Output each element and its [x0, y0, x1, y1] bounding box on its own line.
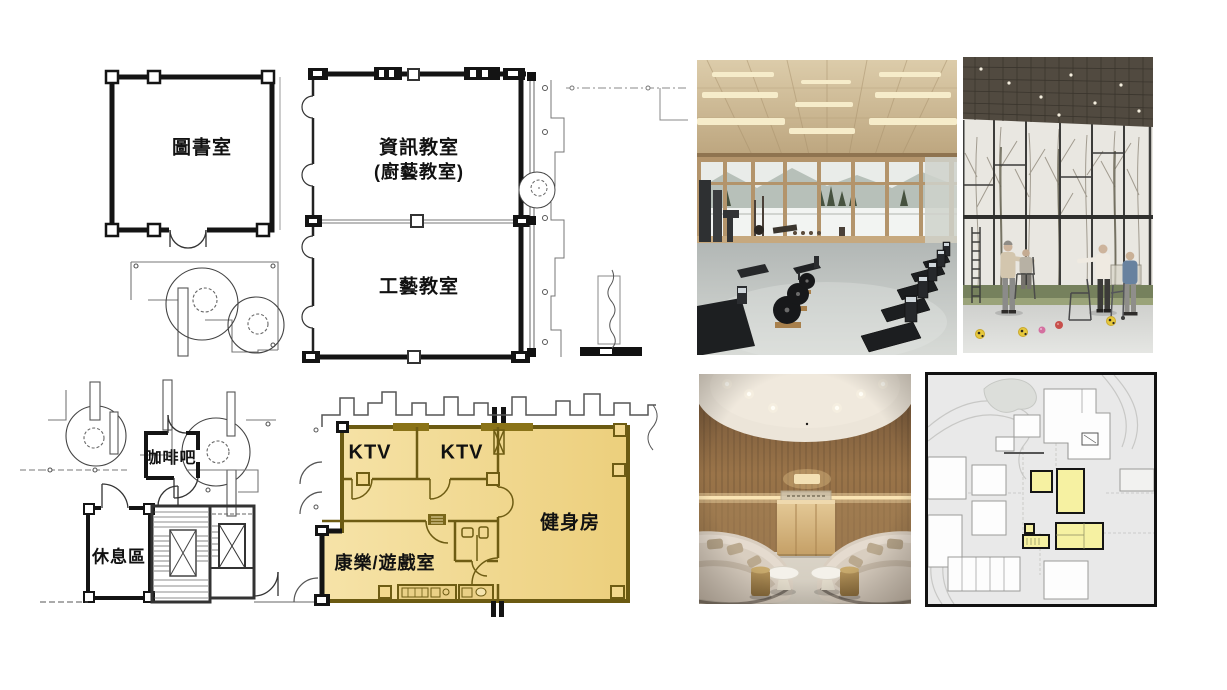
rest-area-and-core	[40, 484, 318, 602]
room-label-coffee-bar: 咖啡吧	[145, 444, 196, 468]
parapet-outline	[322, 392, 656, 427]
built-in-furniture	[398, 585, 493, 600]
gym-interior-photo	[697, 60, 957, 355]
lounge-interior-photo	[699, 374, 911, 604]
room-label-craft-classroom: 工藝教室	[379, 272, 459, 299]
corridor-strip	[519, 72, 688, 357]
classroom-block	[302, 67, 530, 363]
room-label-ktv-right: KTV	[441, 442, 484, 465]
key-plan-mini-map	[925, 372, 1157, 607]
library-room	[106, 71, 280, 248]
room-label-gym: 健身房	[540, 508, 600, 535]
room-label-info-classroom: 資訊教室	[379, 133, 459, 160]
highlighted-activity-block	[300, 392, 656, 617]
room-label-rest-area: 休息區	[92, 543, 146, 568]
room-label-recreation-room: 康樂/遊戲室	[334, 549, 435, 575]
room-label-info-classroom-alt: (廚藝教室)	[374, 158, 464, 184]
room-label-ktv-left: KTV	[349, 442, 392, 465]
room-label-library: 圖書室	[172, 133, 232, 160]
slide-canvas: 圖書室 資訊教室 (廚藝教室) 工藝教室 咖啡吧 休息區 KTV KTV 健身房…	[0, 0, 1227, 690]
activity-hall-photo	[963, 57, 1153, 353]
